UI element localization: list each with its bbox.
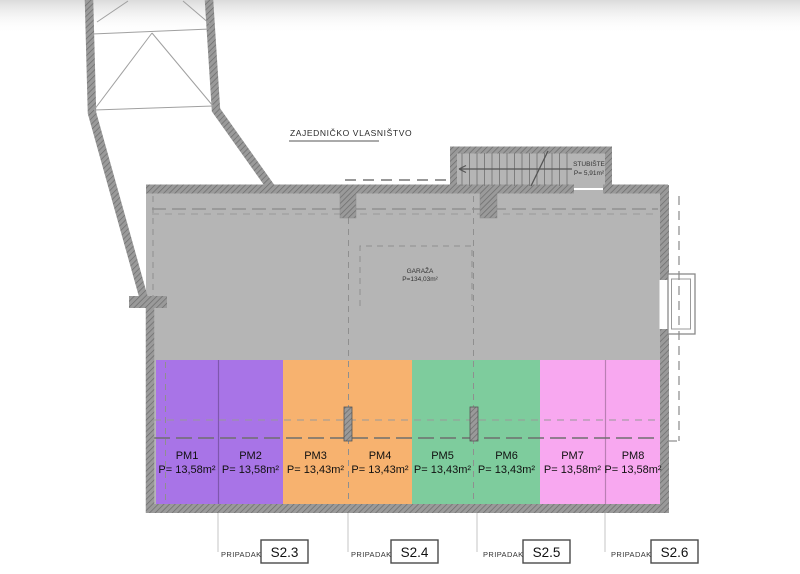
ownership-tag-s26: PRIPADAK S2.6 — [605, 513, 698, 563]
ramp-outer-wall — [89, 0, 144, 299]
garage-name: GARAŽA — [407, 266, 434, 275]
pm4-area: P= 13,43m² — [351, 464, 409, 476]
pm7-area: P= 13,58m² — [544, 464, 602, 476]
pripadak-label: PRIPADAK — [351, 550, 392, 559]
pm5-area: P= 13,43m² — [414, 464, 472, 476]
scan-shadow — [0, 0, 800, 34]
ownership-tag-s25: PRIPADAK S2.5 — [477, 513, 570, 563]
pripadak-label: PRIPADAK — [221, 550, 262, 559]
parking-space-pm6 — [473, 360, 540, 506]
common-area-title: ZAJEDNIČKO VLASNIŠTVO — [289, 128, 412, 141]
pm2-id: PM2 — [239, 450, 262, 462]
pm1-area: P= 13,58m² — [158, 464, 216, 476]
pm4-id: PM4 — [369, 450, 392, 462]
ownership-tag-s23: PRIPADAK S2.3 — [218, 513, 308, 563]
pripadak-label: PRIPADAK — [611, 550, 652, 559]
pm3-area: P= 13,43m² — [287, 464, 345, 476]
parking-space-pm7 — [540, 360, 605, 506]
floor-plan-page: STUBIŠTE P= 5,91m² ZAJEDNIČKO VLASNIŠTVO… — [0, 0, 800, 574]
pm6-area: P= 13,43m² — [478, 464, 536, 476]
unit-code: S2.6 — [661, 545, 689, 560]
parking-space-pm4 — [348, 360, 412, 506]
parking-space-pm3 — [283, 360, 348, 506]
column-pm5-pm6 — [470, 407, 478, 441]
parking-space-pm5 — [412, 360, 473, 506]
parking-spaces — [156, 360, 661, 506]
floor-plan-drawing: STUBIŠTE P= 5,91m² ZAJEDNIČKO VLASNIŠTVO… — [0, 0, 800, 574]
parking-space-pm2 — [218, 360, 283, 506]
window-niche — [660, 274, 696, 334]
pm7-id: PM7 — [561, 450, 584, 462]
pm5-id: PM5 — [431, 450, 454, 462]
garage-label: GARAŽA P=134,03m² — [402, 266, 438, 283]
column-pm3-pm4 — [344, 407, 352, 441]
unit-code: S2.3 — [271, 545, 299, 560]
staircase-area: P= 5,91m² — [574, 170, 605, 177]
parking-space-pm8 — [605, 360, 661, 506]
ownership-tags: PRIPADAK S2.3 PRIPADAK S2.4 PRIPADAK S2.… — [218, 513, 698, 563]
garage-area: P=134,03m² — [402, 276, 438, 283]
pm3-id: PM3 — [304, 450, 327, 462]
pm2-area: P= 13,58m² — [222, 464, 280, 476]
pm6-id: PM6 — [495, 450, 518, 462]
pm8-id: PM8 — [622, 450, 645, 462]
common-area-label: ZAJEDNIČKO VLASNIŠTVO — [290, 128, 412, 138]
ownership-tag-s24: PRIPADAK S2.4 — [348, 513, 438, 563]
staircase-name: STUBIŠTE — [573, 159, 605, 168]
unit-code: S2.4 — [401, 545, 429, 560]
unit-code: S2.5 — [533, 545, 561, 560]
pripadak-label: PRIPADAK — [483, 550, 524, 559]
pm1-id: PM1 — [176, 450, 199, 462]
pm8-area: P= 13,58m² — [604, 464, 662, 476]
